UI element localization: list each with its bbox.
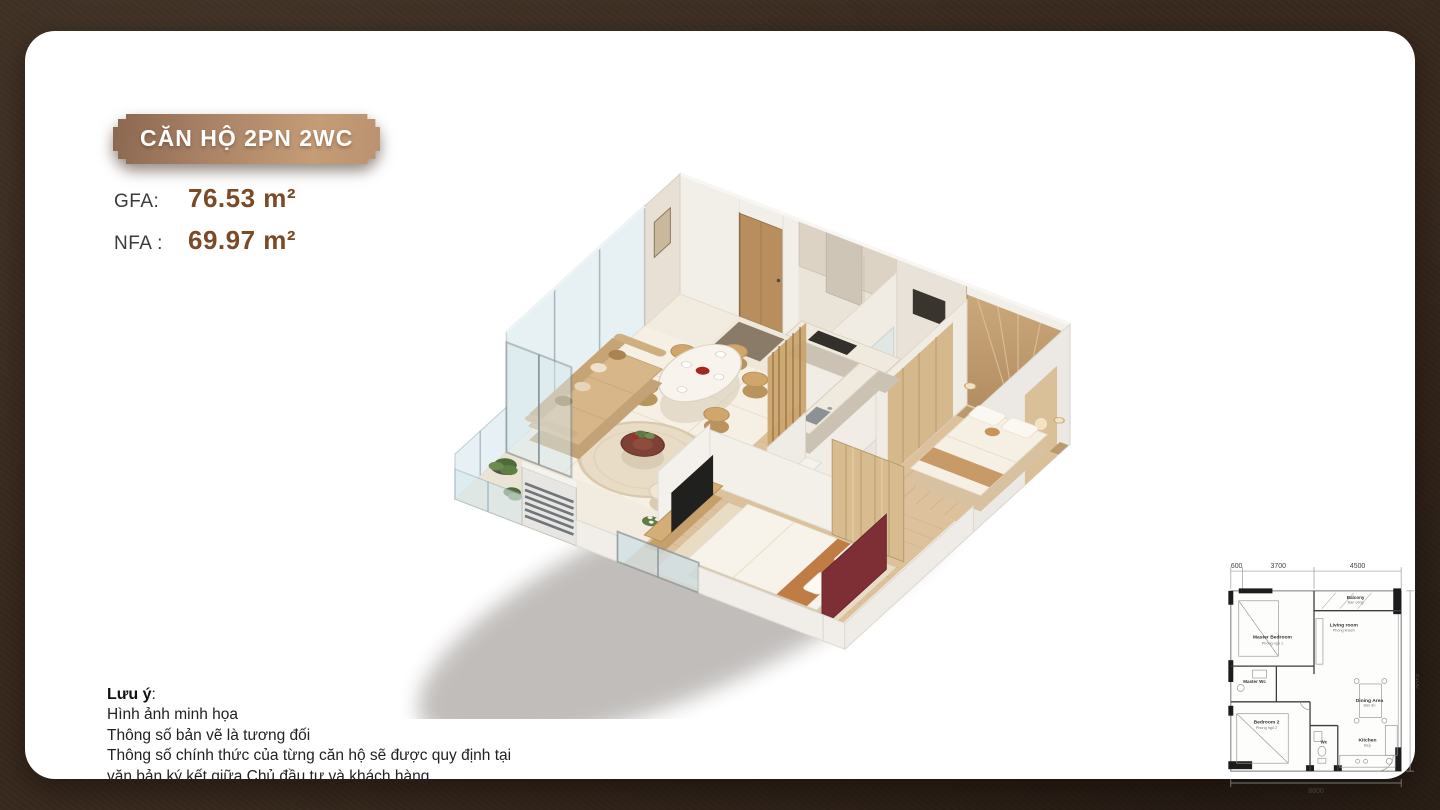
note-line: văn bản ký kết giữa Chủ đầu tư và khách … xyxy=(107,767,587,787)
dim-3700: 3700 xyxy=(1271,563,1287,570)
dim-8800: 8800 xyxy=(1308,788,1324,795)
svg-text:Phòng ngủ 2: Phòng ngủ 2 xyxy=(1256,726,1277,730)
gfa-value: 76.53 m² xyxy=(188,183,296,214)
note-title: Lưu ý xyxy=(107,686,151,703)
gfa-row: GFA: 76.53 m² xyxy=(114,183,296,214)
note-line: Thông số bản vẽ là tương đối xyxy=(107,726,587,746)
dim-4500: 4500 xyxy=(1350,563,1366,570)
dim-600: 600 xyxy=(1231,563,1243,570)
nfa-row: NFA : 69.97 m² xyxy=(114,225,296,256)
label-wc: Wc xyxy=(1321,739,1328,744)
marketing-slide: { "badge": { "label": "CĂN HỘ 2PN 2WC" }… xyxy=(0,0,1440,810)
label-master-wc: Master Wc xyxy=(1243,679,1266,684)
dim-9100: 9100 xyxy=(1414,673,1419,689)
floorplan-3d-render xyxy=(375,119,1115,719)
label-balcony: Balcony xyxy=(1347,595,1365,600)
nfa-label: NFA : xyxy=(114,233,188,255)
svg-text:Phòng khách: Phòng khách xyxy=(1333,628,1355,632)
disclaimer-note: Lưu ý: Hình ảnh minh họa Thông số bản vẽ… xyxy=(107,684,587,787)
content-card: CĂN HỘ 2PN 2WC GFA: 76.53 m² NFA : 69.97… xyxy=(25,31,1415,779)
floorplan-2d-diagram: 600 3700 4500 9100 8800 xyxy=(1211,555,1419,807)
apartment-type-title: CĂN HỘ 2PN 2WC xyxy=(113,114,380,164)
door-handle xyxy=(777,279,781,283)
gfa-label: GFA: xyxy=(114,191,188,213)
svg-text:Bếp: Bếp xyxy=(1364,743,1371,747)
title-badge: CĂN HỘ 2PN 2WC xyxy=(113,114,380,164)
label-master-bedroom: Master Bedroom xyxy=(1253,634,1293,640)
svg-text:Phòng ngủ 1: Phòng ngủ 1 xyxy=(1262,641,1283,645)
note-line: Hình ảnh minh họa xyxy=(107,705,587,725)
label-bedroom2: Bedroom 2 xyxy=(1254,720,1280,726)
nfa-value: 69.97 m² xyxy=(188,225,296,256)
area-specs: GFA: 76.53 m² NFA : 69.97 m² xyxy=(114,183,296,267)
svg-text:Bàn ăn: Bàn ăn xyxy=(1364,704,1376,708)
balcony-sliding-door xyxy=(506,342,571,477)
svg-text:Ban công: Ban công xyxy=(1348,601,1364,605)
note-title-line: Lưu ý: xyxy=(107,684,587,705)
note-line: Thông số chính thức của từng căn hộ sẽ đ… xyxy=(107,746,587,766)
